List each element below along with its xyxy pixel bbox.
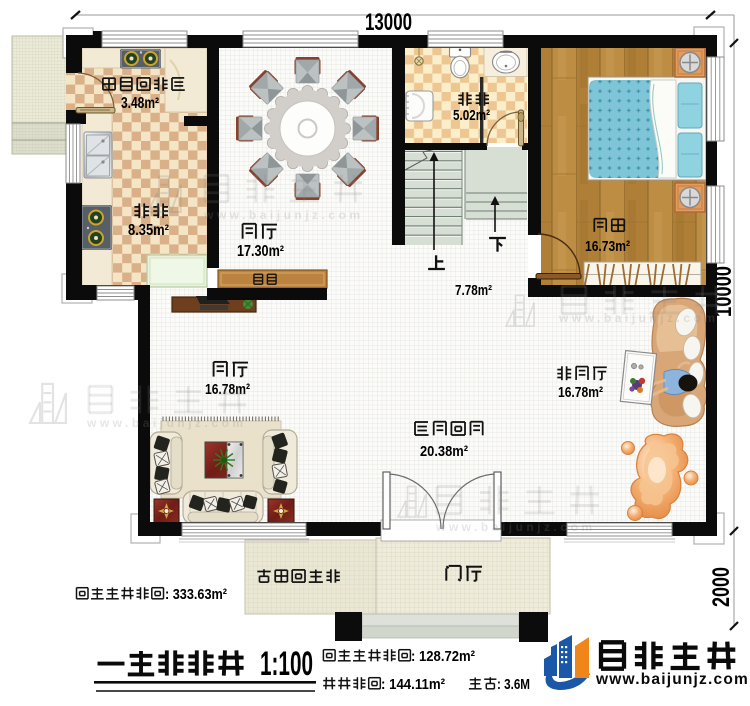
svg-text:www.baijunjz.com: www.baijunjz.com: [595, 671, 749, 688]
svg-text:7.78m²: 7.78m²: [455, 283, 492, 299]
svg-text:: 3.6M: : 3.6M: [497, 676, 530, 693]
svg-text:16.73m²: 16.73m²: [585, 238, 630, 255]
svg-text:www.baijunjz.com: www.baijunjz.com: [558, 311, 719, 325]
svg-text:17.30m²: 17.30m²: [237, 243, 284, 260]
svg-text:16.78m²: 16.78m²: [205, 381, 250, 398]
svg-text:www.baijunjz.com: www.baijunjz.com: [86, 416, 247, 430]
svg-text:13000: 13000: [365, 9, 412, 36]
svg-text:5.02m²: 5.02m²: [453, 107, 490, 124]
svg-text:16.78m²: 16.78m²: [558, 384, 603, 401]
svg-text:: 144.11m²: : 144.11m²: [381, 676, 445, 693]
svg-text:2000: 2000: [708, 567, 735, 607]
svg-text:www.baijunjz.com: www.baijunjz.com: [435, 520, 596, 534]
svg-text:: 128.72m²: : 128.72m²: [411, 648, 475, 665]
svg-text:: 333.63m²: : 333.63m²: [165, 586, 227, 603]
svg-text:1:100: 1:100: [260, 645, 313, 683]
svg-text:20.38m²: 20.38m²: [420, 443, 468, 460]
svg-text:www.baijunjz.com: www.baijunjz.com: [203, 208, 364, 222]
svg-text:8.35m²: 8.35m²: [128, 222, 169, 239]
svg-text:3.48m²: 3.48m²: [121, 95, 159, 112]
